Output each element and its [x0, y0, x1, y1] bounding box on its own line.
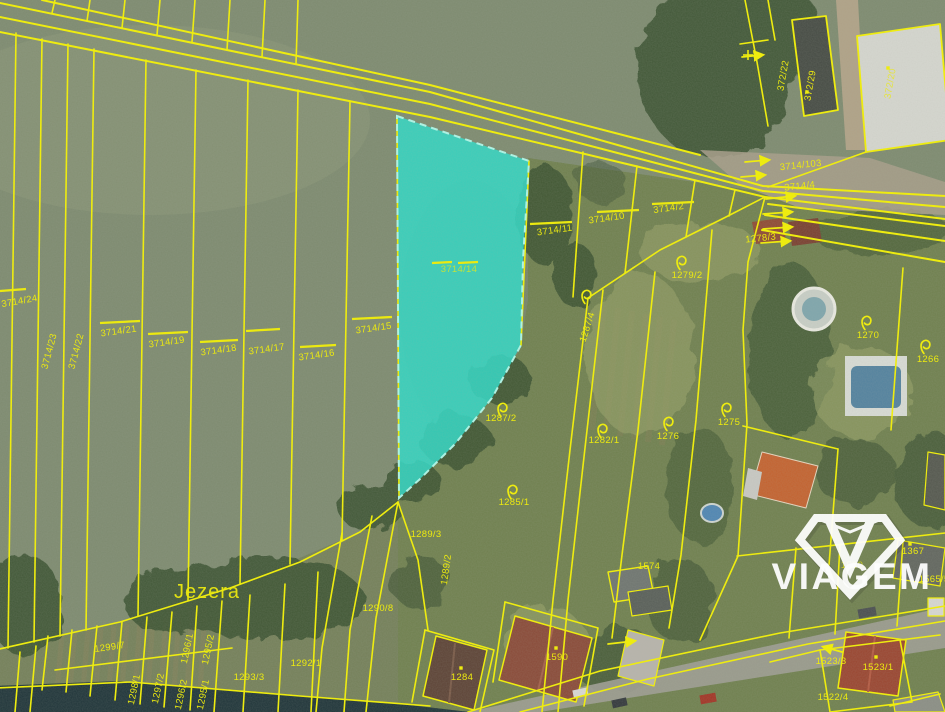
parcel-label: 1290/8: [363, 603, 394, 614]
parcel-label: 1293/3: [234, 672, 265, 683]
viagem-brand-text: VIAGEM: [772, 556, 933, 597]
parcel-label: 1574: [638, 561, 660, 572]
parcel-label: 3714/14: [441, 264, 477, 275]
parcel-label: 1279/2: [672, 270, 703, 281]
cadastral-map[interactable]: 3714/243714/233714/223714/213714/193714/…: [0, 0, 945, 712]
parcel-label: 1284: [451, 672, 473, 683]
parcel-label: 1266: [917, 354, 939, 365]
parcel-label: 1276: [657, 431, 679, 442]
parcel-label: 1275: [718, 417, 740, 428]
place-label: Jezera: [174, 581, 240, 603]
parcel-label: 1523/3: [816, 656, 847, 667]
parcel-label: 1282/1: [589, 435, 620, 446]
boundary-dash-mark: [432, 262, 452, 263]
building-center-dot-icon: [459, 666, 462, 669]
building-center-dot-icon: [554, 646, 557, 649]
parcel-label: 1292/1: [291, 658, 322, 669]
parcel-label: 1285/1: [499, 497, 530, 508]
parcel-label: 1590: [546, 652, 568, 663]
parcel-label: 1289/3: [411, 529, 442, 540]
parcel-label: 1523/1: [863, 662, 894, 673]
small-pool: [701, 504, 723, 522]
building-center-dot-icon: [874, 655, 877, 658]
white-warehouse: [857, 24, 945, 152]
parcel-label: 1287/2: [486, 413, 517, 424]
parcel-label: 1270: [857, 330, 879, 341]
parcel-label: 1522/4: [818, 692, 849, 703]
boundary-dash-mark: [458, 262, 478, 263]
